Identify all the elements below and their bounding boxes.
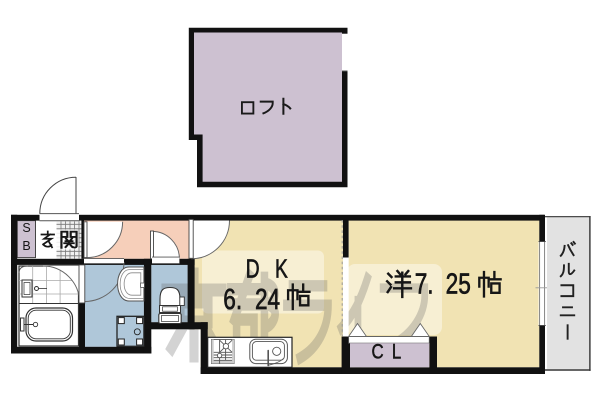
svg-text:K: K	[275, 255, 288, 283]
svg-text:C: C	[372, 341, 384, 364]
svg-text:S: S	[22, 221, 30, 235]
svg-text:24: 24	[255, 282, 280, 315]
svg-text:6.: 6.	[223, 282, 242, 315]
svg-text:B: B	[22, 239, 30, 253]
svg-text:L: L	[392, 341, 401, 364]
svg-text:25: 25	[446, 267, 471, 300]
svg-text:D: D	[246, 255, 260, 283]
svg-text:7.: 7.	[415, 267, 434, 300]
